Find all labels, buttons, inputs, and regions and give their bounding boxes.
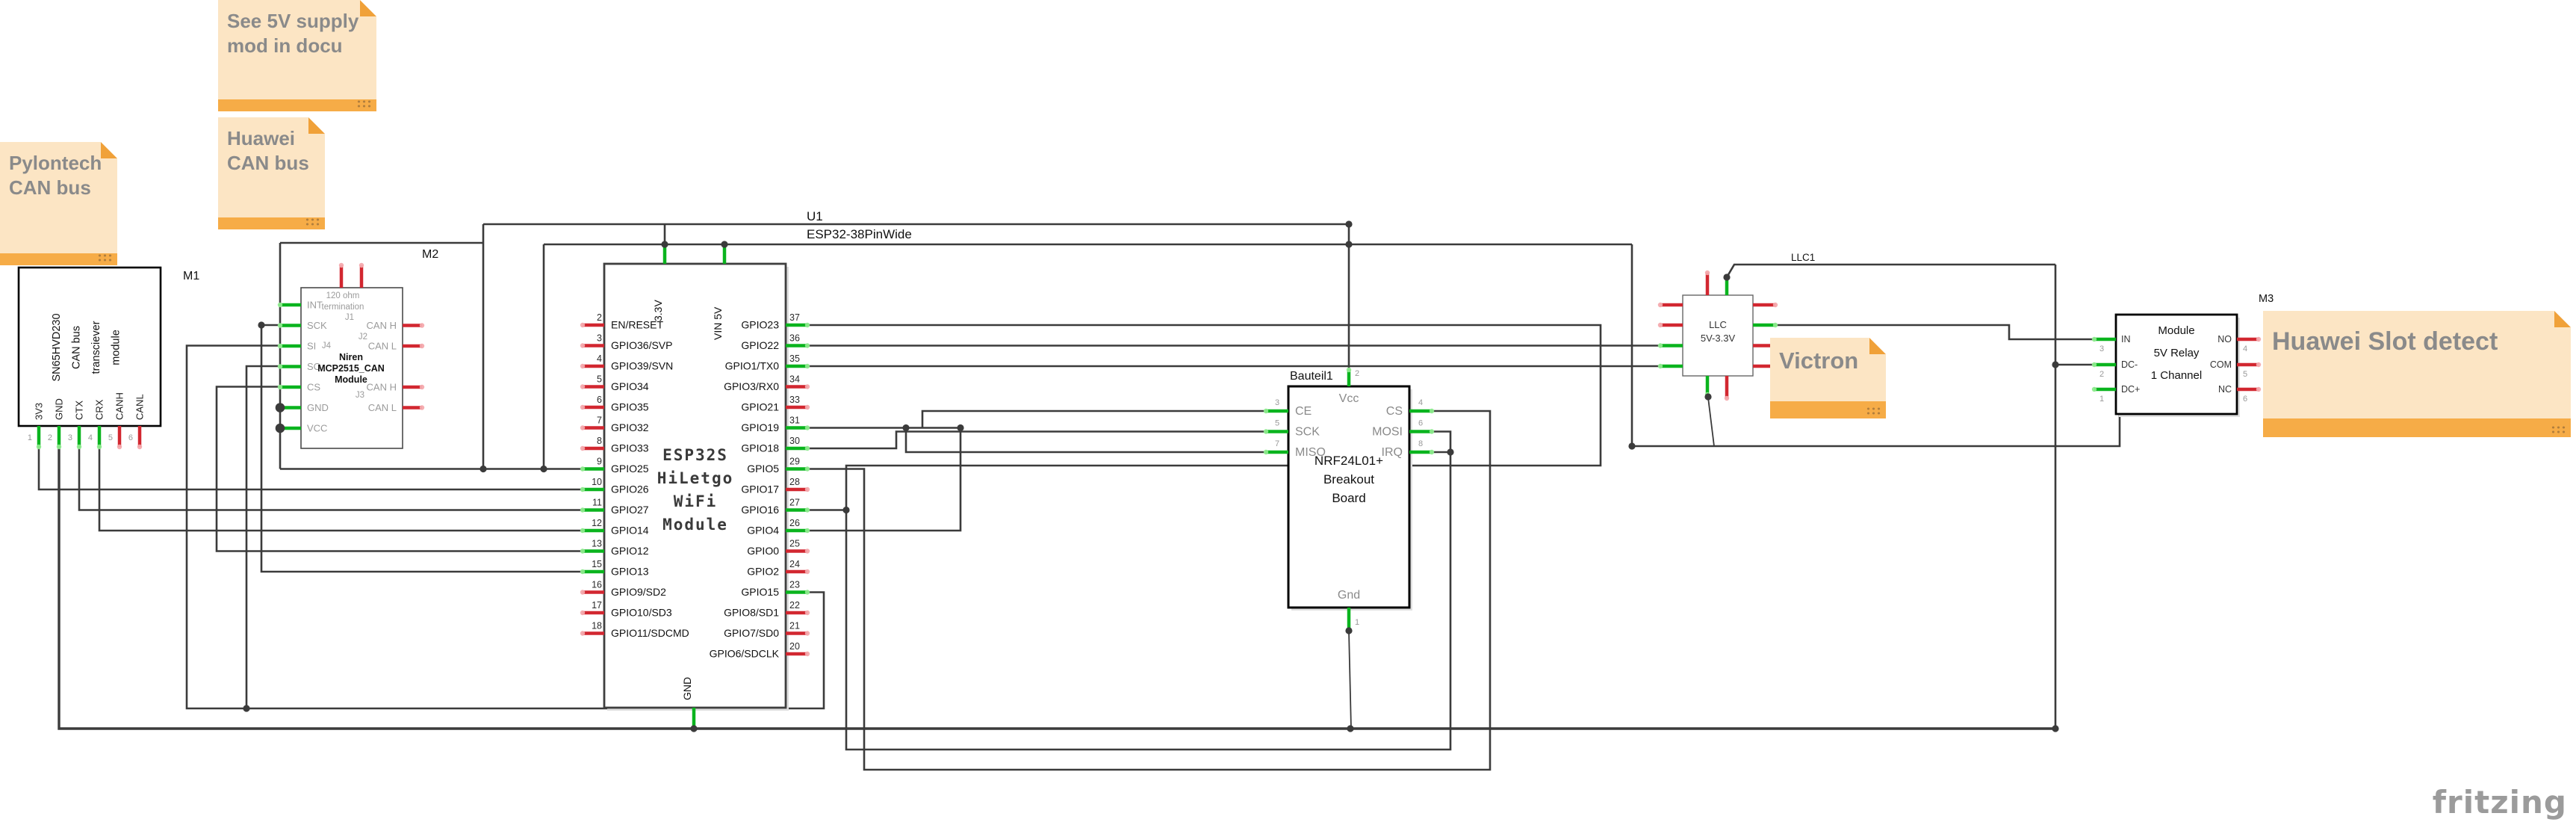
pin-cap xyxy=(1264,429,1268,433)
junction-dot xyxy=(661,241,668,247)
pin-number: 4 xyxy=(597,353,602,364)
pin-cap xyxy=(805,569,810,574)
llc-ref-label: LLC1 xyxy=(1791,252,1815,263)
note-strip xyxy=(2263,418,2571,437)
pin-label: GPIO33 xyxy=(611,442,649,454)
note-line: Pylontech xyxy=(9,151,108,176)
pin-cap xyxy=(805,528,810,533)
junction-dot xyxy=(1704,393,1711,400)
pin-cap xyxy=(580,425,585,430)
pin-number: 8 xyxy=(1418,439,1423,448)
pin-cap xyxy=(580,487,585,492)
pin-label: GPIO14 xyxy=(611,525,649,537)
pin-cap xyxy=(97,445,102,449)
pin-cap xyxy=(1705,271,1710,275)
pin-number: 27 xyxy=(789,498,800,508)
pin-number: 15 xyxy=(592,559,602,569)
pin-label: CS xyxy=(307,382,320,393)
junction-dot xyxy=(2052,725,2058,732)
wire-relay-in xyxy=(1775,325,2094,339)
pin-label: GPIO3/RX0 xyxy=(724,380,779,392)
module-note: J2 xyxy=(359,333,367,342)
module-title: WiFi xyxy=(674,492,718,510)
pin-label: GPIO23 xyxy=(741,319,779,331)
pin-label: GPIO34 xyxy=(611,380,649,392)
pin-cap xyxy=(580,569,585,574)
pin-label: VIN 5V xyxy=(712,306,724,340)
m1-ref-label: M1 xyxy=(183,270,199,282)
note-strip xyxy=(0,253,117,265)
pin-label: GPIO32 xyxy=(611,421,649,433)
pin-cap xyxy=(805,487,810,492)
pin-label: GPIO35 xyxy=(611,401,649,413)
pin-number: 33 xyxy=(789,395,800,405)
pin-cap xyxy=(2092,387,2097,392)
module-title: LLC xyxy=(1709,319,1727,330)
pin-cap xyxy=(580,631,585,635)
module-title: HiLetgo xyxy=(657,469,734,487)
pin-cap xyxy=(1264,450,1268,454)
note-line: Huawei Slot detect xyxy=(2272,326,2562,358)
note-strip xyxy=(218,99,376,111)
note-dots-icon xyxy=(2551,425,2567,435)
pin-number: 7 xyxy=(597,415,602,426)
pin-cap xyxy=(420,385,424,389)
module-title: NRF24L01+ xyxy=(1315,454,1383,468)
pin-cap xyxy=(2092,337,2097,342)
pin-cap xyxy=(805,405,810,410)
pin-cap xyxy=(339,263,344,268)
junction-dot xyxy=(258,321,264,328)
pin-number: 35 xyxy=(789,353,800,364)
module-title: MCP2515_CAN xyxy=(317,363,385,374)
pin-label: GPIO22 xyxy=(741,339,779,351)
pin-number: 2 xyxy=(48,433,52,442)
pin-label: GPIO9/SD2 xyxy=(611,586,666,598)
pin-number: 8 xyxy=(597,436,602,446)
pin-number: 34 xyxy=(789,374,800,385)
pin-number: 18 xyxy=(592,621,602,631)
pin-cap xyxy=(1347,368,1351,372)
pin-cap xyxy=(580,446,585,451)
m2-ref-label: M2 xyxy=(422,248,438,261)
module-title: module xyxy=(111,330,122,365)
pin-cap xyxy=(580,466,585,471)
pin-label: Gnd xyxy=(1338,589,1360,602)
pin-cap xyxy=(805,364,810,368)
pin-number: 1 xyxy=(2099,395,2104,404)
wire-llc1-net xyxy=(1727,265,2094,729)
pin-label: GPIO17 xyxy=(741,483,779,495)
pin-number: 36 xyxy=(789,333,800,344)
module-note: J1 xyxy=(345,313,354,322)
pin-number: 6 xyxy=(1418,419,1423,428)
sticky-note-victron[interactable]: Victron xyxy=(1770,338,1886,418)
pin-number: 4 xyxy=(1418,398,1423,407)
pin-cap xyxy=(580,384,585,389)
module-title: 5V Relay xyxy=(2154,347,2200,359)
pin-cap xyxy=(580,323,585,327)
wire-slant-llc xyxy=(1708,398,1714,446)
pin-cap xyxy=(580,549,585,553)
module-title: transciever xyxy=(90,321,102,374)
junction-dot xyxy=(721,241,727,247)
pin-label: GND xyxy=(307,402,329,413)
pin-cap xyxy=(359,263,364,268)
pin-cap xyxy=(805,384,810,389)
junction-dot xyxy=(1723,274,1730,280)
pin-label: GPIO2 xyxy=(747,566,779,578)
pin-cap xyxy=(2092,362,2097,367)
note-dots-icon xyxy=(1866,407,1882,416)
pin-number: 5 xyxy=(2243,370,2247,379)
note-line: CAN bus xyxy=(227,151,316,176)
pin-cap xyxy=(57,445,61,449)
pin-label: GPIO6/SDCLK xyxy=(710,648,780,660)
pin-label: GPIO8/SD1 xyxy=(724,607,779,619)
pin-cap xyxy=(278,385,282,389)
pin-cap xyxy=(278,323,282,327)
junction-dot xyxy=(1628,442,1635,449)
pin-number: 28 xyxy=(789,477,800,487)
pin-number: 16 xyxy=(592,580,602,590)
pin-label: GPIO16 xyxy=(741,504,779,516)
pin-cap xyxy=(805,631,810,635)
junction-dot xyxy=(690,725,697,732)
pin-label: CRX xyxy=(94,399,105,420)
pin-label: CTX xyxy=(74,401,85,420)
pin-label: DC+ xyxy=(2121,384,2140,395)
pin-cap xyxy=(1658,364,1663,368)
junction-dot xyxy=(1345,220,1352,227)
junction-dot xyxy=(276,424,285,433)
pin-number: 2 xyxy=(597,312,602,323)
pin-label: CAN H xyxy=(367,320,397,331)
pin-label: CS xyxy=(1386,405,1403,418)
pin-cap xyxy=(278,364,282,368)
pin-number: 20 xyxy=(789,641,800,652)
note-strip xyxy=(218,217,325,229)
pin-number: 4 xyxy=(88,433,93,442)
m3-ref-label: M3 xyxy=(2259,293,2274,305)
pin-cap xyxy=(137,445,142,449)
pin-number: 5 xyxy=(108,433,113,442)
pin-cap xyxy=(580,611,585,615)
pin-label: MOSI xyxy=(1372,426,1403,439)
pin-label: GPIO5 xyxy=(747,463,779,475)
module-title: SN65HVD230 xyxy=(51,313,63,381)
pin-cap xyxy=(2256,387,2261,392)
pin-cap xyxy=(580,364,585,368)
pin-cap xyxy=(1773,303,1778,307)
pin-label: GPIO13 xyxy=(611,566,649,578)
pin-label: CANL xyxy=(134,394,146,420)
module-title: 1 Channel xyxy=(2151,369,2202,382)
junction-dot xyxy=(243,705,249,711)
junction-dot xyxy=(1345,241,1352,247)
pin-cap xyxy=(1773,323,1778,327)
wire-slant-nrf-gnd xyxy=(1349,631,1351,729)
note-line: mod in docu xyxy=(227,34,367,58)
pin-label: SI xyxy=(307,341,316,352)
pin-label: GPIO4 xyxy=(747,525,779,537)
fritzing-logo: fritzing xyxy=(2433,784,2567,821)
junction-dot xyxy=(1447,448,1453,455)
pin-cap xyxy=(805,343,810,347)
pin-label: CAN H xyxy=(367,382,397,393)
pin-label: CANH xyxy=(114,392,125,420)
wire-llc-inputs xyxy=(807,346,1660,367)
pin-number: 26 xyxy=(789,518,800,528)
junction-dot xyxy=(540,466,547,472)
pin-cap xyxy=(580,405,585,410)
pin-cap xyxy=(805,611,810,615)
u1-ref-label: U1 xyxy=(807,209,823,223)
junction-dot xyxy=(842,507,849,513)
pin-label: IRQ xyxy=(1382,446,1403,459)
pin-label: IN xyxy=(2121,334,2131,344)
pin-cap xyxy=(580,507,585,512)
pin-cap xyxy=(805,446,810,451)
pin-cap xyxy=(1658,343,1663,347)
pin-number: 1 xyxy=(28,433,32,442)
pin-number: 24 xyxy=(789,559,800,569)
pin-number: 2 xyxy=(2099,370,2104,379)
pin-cap xyxy=(805,590,810,594)
pin-label: GPIO12 xyxy=(611,545,649,557)
wire-gpio23-loop xyxy=(807,325,1601,750)
pin-number: 12 xyxy=(592,518,602,528)
schematic-canvas: 2EN/RESET3GPIO36/SVP4GPIO39/SVN5GPIO346G… xyxy=(0,0,2576,825)
pin-label: GPIO1/TX0 xyxy=(725,360,780,372)
pin-cap xyxy=(77,445,81,449)
pin-cap xyxy=(278,344,282,348)
module-title: Module xyxy=(662,516,728,534)
pin-label: VCC xyxy=(307,423,327,434)
pin-cap xyxy=(2256,337,2261,342)
pin-label: GPIO7/SD0 xyxy=(724,627,779,639)
pin-label: GPIO21 xyxy=(741,401,779,413)
pin-cap xyxy=(1430,409,1434,413)
pin-number: 6 xyxy=(597,395,602,405)
pin-cap xyxy=(580,343,585,347)
pin-cap xyxy=(805,652,810,656)
module-title: Module xyxy=(2158,324,2194,337)
pin-label: INT xyxy=(307,300,323,311)
pin-label: CAN L xyxy=(368,402,397,413)
pin-number: 29 xyxy=(789,457,800,467)
pin-cap xyxy=(1725,396,1729,401)
pin-cap xyxy=(1264,409,1268,413)
pin-cap xyxy=(805,466,810,471)
module-note: termination xyxy=(322,303,364,312)
pin-number: 17 xyxy=(592,600,602,611)
pin-label: GPIO36/SVP xyxy=(611,339,672,351)
pin-label: GPIO15 xyxy=(741,586,779,598)
sticky-note-supply[interactable]: See 5V supply mod in docu xyxy=(218,0,376,111)
module-title: Module xyxy=(335,374,367,385)
u1-part-label: ESP32-38PinWide xyxy=(807,227,912,241)
pin-label: GPIO39/SVN xyxy=(611,360,673,372)
module-title: ESP32S xyxy=(662,446,728,464)
pin-number: 10 xyxy=(592,477,602,487)
pin-label: CE xyxy=(1295,405,1312,418)
sticky-note-pylontech[interactable]: Pylontech CAN bus xyxy=(0,142,117,265)
junction-dot xyxy=(1345,627,1352,634)
pin-label: Vcc xyxy=(1339,392,1359,405)
pin-label: 3V3 xyxy=(34,403,45,420)
pin-number: 3 xyxy=(1275,398,1279,407)
pin-label: NC xyxy=(2218,384,2232,395)
pin-number: 21 xyxy=(789,621,800,631)
module-title: Board xyxy=(1332,491,1365,505)
pin-cap xyxy=(37,445,41,449)
pin-label: GPIO0 xyxy=(747,545,779,557)
pin-number: 11 xyxy=(592,498,602,508)
pin-cap xyxy=(580,528,585,533)
sticky-note-huawei-can[interactable]: Huawei CAN bus xyxy=(218,117,325,229)
pin-label: GPIO19 xyxy=(741,421,779,433)
pin-number: 2 xyxy=(1355,369,1359,378)
pin-label: COM xyxy=(2210,359,2232,370)
pin-label: SCK xyxy=(307,320,327,331)
pin-label: GND xyxy=(54,398,65,420)
note-dots-icon xyxy=(97,253,114,263)
pin-number: 30 xyxy=(789,436,800,446)
pin-cap xyxy=(117,445,122,449)
note-line: Victron xyxy=(1779,347,1877,376)
note-line: See 5V supply xyxy=(227,9,367,34)
pin-cap xyxy=(2256,362,2261,367)
module-title: CAN bus xyxy=(71,326,83,369)
pin-cap xyxy=(420,405,424,410)
junction-dot xyxy=(276,403,285,412)
pin-number: 31 xyxy=(789,415,800,426)
pin-number: 3 xyxy=(68,433,72,442)
pin-label: GPIO25 xyxy=(611,463,649,475)
wire-nrf-spi xyxy=(807,411,1266,531)
pin-label: 3.3V xyxy=(652,300,664,321)
junction-dot xyxy=(2052,361,2058,368)
junction-dot xyxy=(957,424,963,431)
pin-label: GND xyxy=(681,677,693,700)
note-line: CAN bus xyxy=(9,176,108,200)
pin-cap xyxy=(1430,450,1434,454)
junction-dot xyxy=(902,424,909,431)
note-strip xyxy=(1770,401,1886,418)
pin-number: 9 xyxy=(597,457,602,467)
pin-number: 25 xyxy=(789,539,800,549)
note-dots-icon xyxy=(305,217,321,227)
pin-number: 1 xyxy=(1355,618,1359,627)
module-note: J4 xyxy=(322,342,332,350)
pin-label: GPIO10/SD3 xyxy=(611,607,672,619)
junction-dot xyxy=(479,466,486,472)
pin-cap xyxy=(1658,323,1663,327)
pin-number: 3 xyxy=(2099,344,2104,353)
pin-label: GPIO11/SDCMD xyxy=(611,627,689,639)
pin-cap xyxy=(580,590,585,594)
sticky-note-huawei-slot[interactable]: Huawei Slot detect xyxy=(2263,311,2571,437)
pin-number: 23 xyxy=(789,580,800,590)
pin-cap xyxy=(1430,429,1434,433)
pin-number: 5 xyxy=(1275,419,1279,428)
pin-number: 37 xyxy=(789,312,800,323)
pin-number: 6 xyxy=(128,433,133,442)
pin-label: SCK xyxy=(1295,426,1320,439)
pin-number: 3 xyxy=(597,333,602,344)
pin-label: CAN L xyxy=(368,341,397,352)
module-note: J3 xyxy=(356,391,364,400)
pin-label: DC- xyxy=(2121,359,2138,370)
pin-number: 6 xyxy=(2243,395,2247,404)
nrf-ref-label: Bauteil1 xyxy=(1290,370,1333,383)
wire-m1-rows xyxy=(39,447,583,531)
pin-label: GPIO18 xyxy=(741,442,779,454)
note-line: Huawei xyxy=(227,126,316,151)
pin-cap xyxy=(420,344,424,348)
pin-number: 5 xyxy=(597,374,602,385)
pin-label: GPIO27 xyxy=(611,504,649,516)
module-title: Breakout xyxy=(1323,472,1374,486)
pin-cap xyxy=(420,323,424,327)
pin-cap xyxy=(805,549,810,553)
junction-dots xyxy=(243,220,2058,732)
junction-dot xyxy=(1347,725,1353,732)
pin-number: 4 xyxy=(2243,344,2247,353)
schematic-svg: 2EN/RESET3GPIO36/SVP4GPIO39/SVN5GPIO346G… xyxy=(0,0,2576,825)
pin-number: 13 xyxy=(592,539,602,549)
pin-cap xyxy=(805,425,810,430)
module-title: Niren xyxy=(339,352,363,362)
note-dots-icon xyxy=(356,99,373,109)
pin-number: 7 xyxy=(1275,439,1279,448)
pin-label: NO xyxy=(2217,334,2232,344)
pin-number: 22 xyxy=(789,600,800,611)
module-note: 120 ohm xyxy=(326,291,360,300)
module-title: 5V-3.3V xyxy=(1701,333,1736,344)
pin-cap xyxy=(1658,303,1663,307)
pin-label: GPIO26 xyxy=(611,483,649,495)
pin-cap xyxy=(278,303,282,307)
pin-cap xyxy=(805,507,810,512)
pin-cap xyxy=(805,323,810,327)
